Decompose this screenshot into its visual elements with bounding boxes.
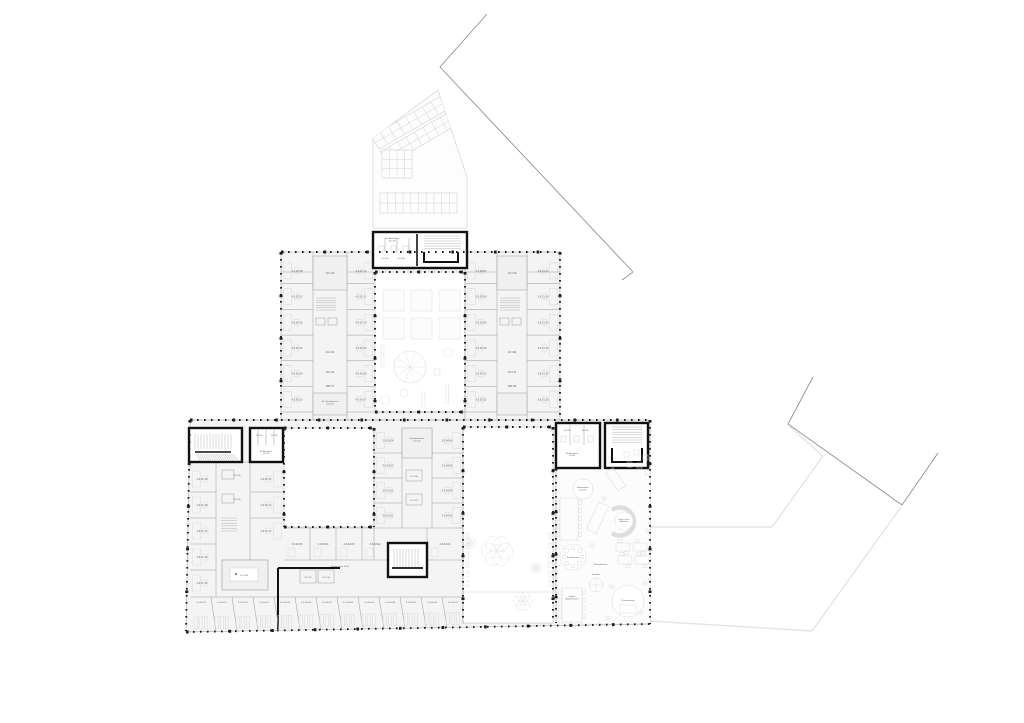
room-label: 4.0.02.17 [292,296,303,299]
room-label: 4.0.02.15 [292,347,303,350]
room-label: 2.0.01.19 [197,478,208,481]
room-label: 10.2.04 [326,351,335,354]
room-label: 2.0.01.18 [197,504,208,507]
room-label: 2.0.02.15 [261,478,272,481]
room-label: 2.0.05.01 [448,602,459,604]
room-label: 3.0.02.08 [476,296,487,299]
panel-line [457,108,465,121]
room-label: 2.0.05.08 [301,602,312,604]
room-label: ABT 07 [326,385,335,388]
room-label: 2.0.04.05 [442,465,453,468]
room-label: 2.0.04.04 [442,490,453,493]
room-label: 2.0.03.01 [383,515,394,518]
planter [411,318,432,339]
room-label: Themenraum [621,599,634,602]
room-label: 10.1.08 [322,577,330,579]
room-label: 10.3.21 [508,371,517,374]
room-label: 3.0.02.09 [476,321,487,324]
panel-line [456,87,464,100]
planter [383,318,404,339]
room-label: 3.0.02.11 [476,373,487,376]
room-label: 3.0.01.15 [538,321,549,324]
room-label: 3.0.02.07 [476,270,487,273]
room-label: 10.1.60 [240,575,249,577]
room-label: 2.0.05.07 [322,602,333,604]
room-label: 10.1.03 [410,500,418,502]
terrace-edge [650,427,823,527]
room-label: 3.0.02.12 [476,398,487,401]
room-label: 10.3.20 [508,272,517,275]
wc-core-nw [250,428,283,462]
bistro-label: Bistrobereich [594,563,608,566]
room-label: 2.0.05.02 [427,602,438,604]
room-label: 2.0.05.06 [343,602,354,604]
room-label: 3.0.01.13 [538,270,549,273]
panel-line [448,92,456,105]
site-boundary [440,14,633,280]
room-label: 3.0.01.17 [538,373,549,376]
floor-plan-svg: 4.0.02.184.0.03.123.0.02.073.0.01.134.0.… [0,0,1024,723]
room-label: 2.0.01.16 [197,556,208,559]
room-label: 2.0.05.09 [280,602,291,604]
planter [383,290,404,311]
room-label: 10.2.06 [271,435,279,437]
room-label: 2.0.05.11 [238,602,249,604]
room-label: 3.0.01.16 [538,347,549,350]
tspan-shape: Bibliothek [620,520,630,523]
room-label: 10.1.05 [233,475,241,477]
room-label: 2.0.02.03 [344,543,355,546]
room-label: 2.0.05.12 [217,602,228,604]
putz-room [402,428,432,458]
room-label: 10.0.05 [381,258,389,260]
room-label: 10.1.20 [326,272,335,275]
room-label: 10.1.21 [326,371,335,374]
room-label: 4.0.02.14 [292,373,303,376]
room-label: 2.0.05.03 [406,602,417,604]
room-label: 2.0.02.14 [261,504,272,507]
tspan-shape: bereich [579,488,587,491]
room-label: 2.0.05.05 [364,602,375,604]
room-label: Projektraum [567,556,579,559]
room-label: 10.1.07 [304,577,312,579]
room-label: 4.0.02.16 [292,321,303,324]
room-label: 2.0.04.03 [442,515,453,518]
room-label: 10.0.06 [397,258,405,260]
tspan-shape: 10.1.03 [263,453,269,455]
core-room [497,393,527,415]
tspan-shape: 10.0.03 [388,240,396,242]
courtyard-west [284,428,374,527]
room-label: 10.2.05 [256,435,263,437]
terrace-edge [650,507,901,631]
tspan-shape: 10.2.03 [326,403,334,405]
room-label: 2.0.03.04 [383,440,394,443]
room-label: 2.0.02.05 [292,543,303,546]
room-label: 2.0.05.10 [259,602,270,604]
room-label: 4.0.02.18 [292,270,303,273]
room-label: 2.0.01.17 [197,530,208,533]
room-label: 2.0.01.15 [197,582,208,585]
room-label: 2.0.05.13 [196,602,207,604]
courtyard-east [463,427,553,623]
room-label: 10.3.04 [508,351,517,354]
room-label: 2.0.02.04 [318,543,329,546]
site-boundary [788,377,938,505]
table-dot [235,573,237,575]
room-label: Teeküche [592,574,602,576]
room-label: 10.3.05 [564,430,571,432]
room-label: 2.0.02.01 [440,543,451,546]
room-label: 2.0.02.13 [261,530,272,533]
room-label: 10.1.06 [233,499,241,501]
planter [439,318,460,339]
room-label: 3.0.01.14 [538,296,549,299]
room-label: 10.3.06 [582,430,590,432]
room-label: 2.0.04.06 [442,440,453,443]
room-label: 10.1.04 [410,476,418,478]
room-label: ABT 08 [508,385,517,388]
room-label: 4.0.02.13 [292,398,303,401]
room-label: 2.0.03.02 [383,490,394,493]
planter [411,290,432,311]
room-label: 2.0.02.02 [370,543,381,546]
tspan-shape: 10.3.03 [569,455,575,457]
room-label: 3.0.01.18 [538,398,549,401]
room-label: 3.0.02.10 [476,347,487,350]
floor-plan-canvas: 4.0.02.184.0.03.123.0.02.073.0.01.134.0.… [0,0,1024,723]
tspan-shape: 10.1.02 [413,440,421,442]
room-label: 2.0.03.03 [383,465,394,468]
tspan-shape: Amphitheater [565,597,578,600]
planter [439,290,460,311]
room-label: 2.0.05.04 [385,602,396,604]
panel-line [465,103,473,116]
